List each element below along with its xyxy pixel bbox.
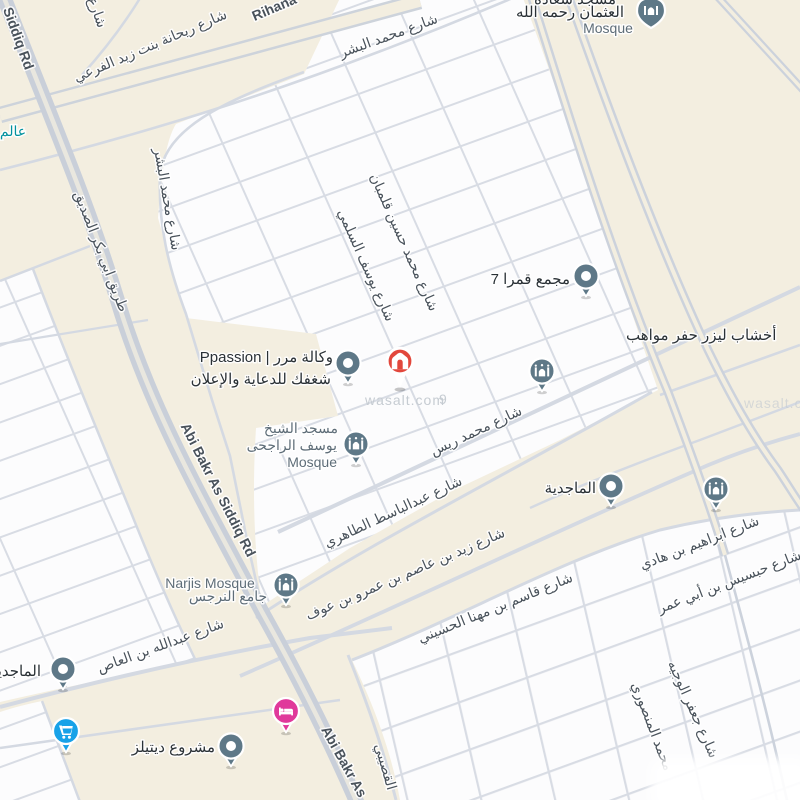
svg-text:9: 9 <box>439 391 448 407</box>
svg-text:مشروع ديتيلز: مشروع ديتيلز <box>131 739 215 756</box>
svg-text:عالم: عالم <box>0 123 26 140</box>
svg-text:أخشاب ليزر حفر مواهب: أخشاب ليزر حفر مواهب <box>626 325 776 344</box>
svg-text:Mosque: Mosque <box>583 20 633 36</box>
svg-text:شغفك للدعاية والإعلان: شغفك للدعاية والإعلان <box>191 371 331 388</box>
svg-text:مجمع قمرا 7: مجمع قمرا 7 <box>491 271 570 288</box>
svg-text:مسجد سعاده: مسجد سعاده <box>534 0 616 8</box>
svg-text:Ppassion | وكالة مرر: Ppassion | وكالة مرر <box>200 349 333 366</box>
svg-text:الماجدية: الماجدية <box>545 480 596 497</box>
svg-text:wasalt.com: wasalt.com <box>364 392 445 408</box>
svg-text:جامع النرجس: جامع النرجس <box>189 588 267 605</box>
svg-text:Mosque: Mosque <box>287 454 337 470</box>
svg-text:يوسف الراجحى: يوسف الراجحى <box>247 437 337 454</box>
svg-text:wasalt.co: wasalt.co <box>743 395 800 411</box>
svg-text:الماجدية: الماجدية <box>0 663 41 680</box>
svg-text:مسجد الشيخ: مسجد الشيخ <box>264 420 338 437</box>
